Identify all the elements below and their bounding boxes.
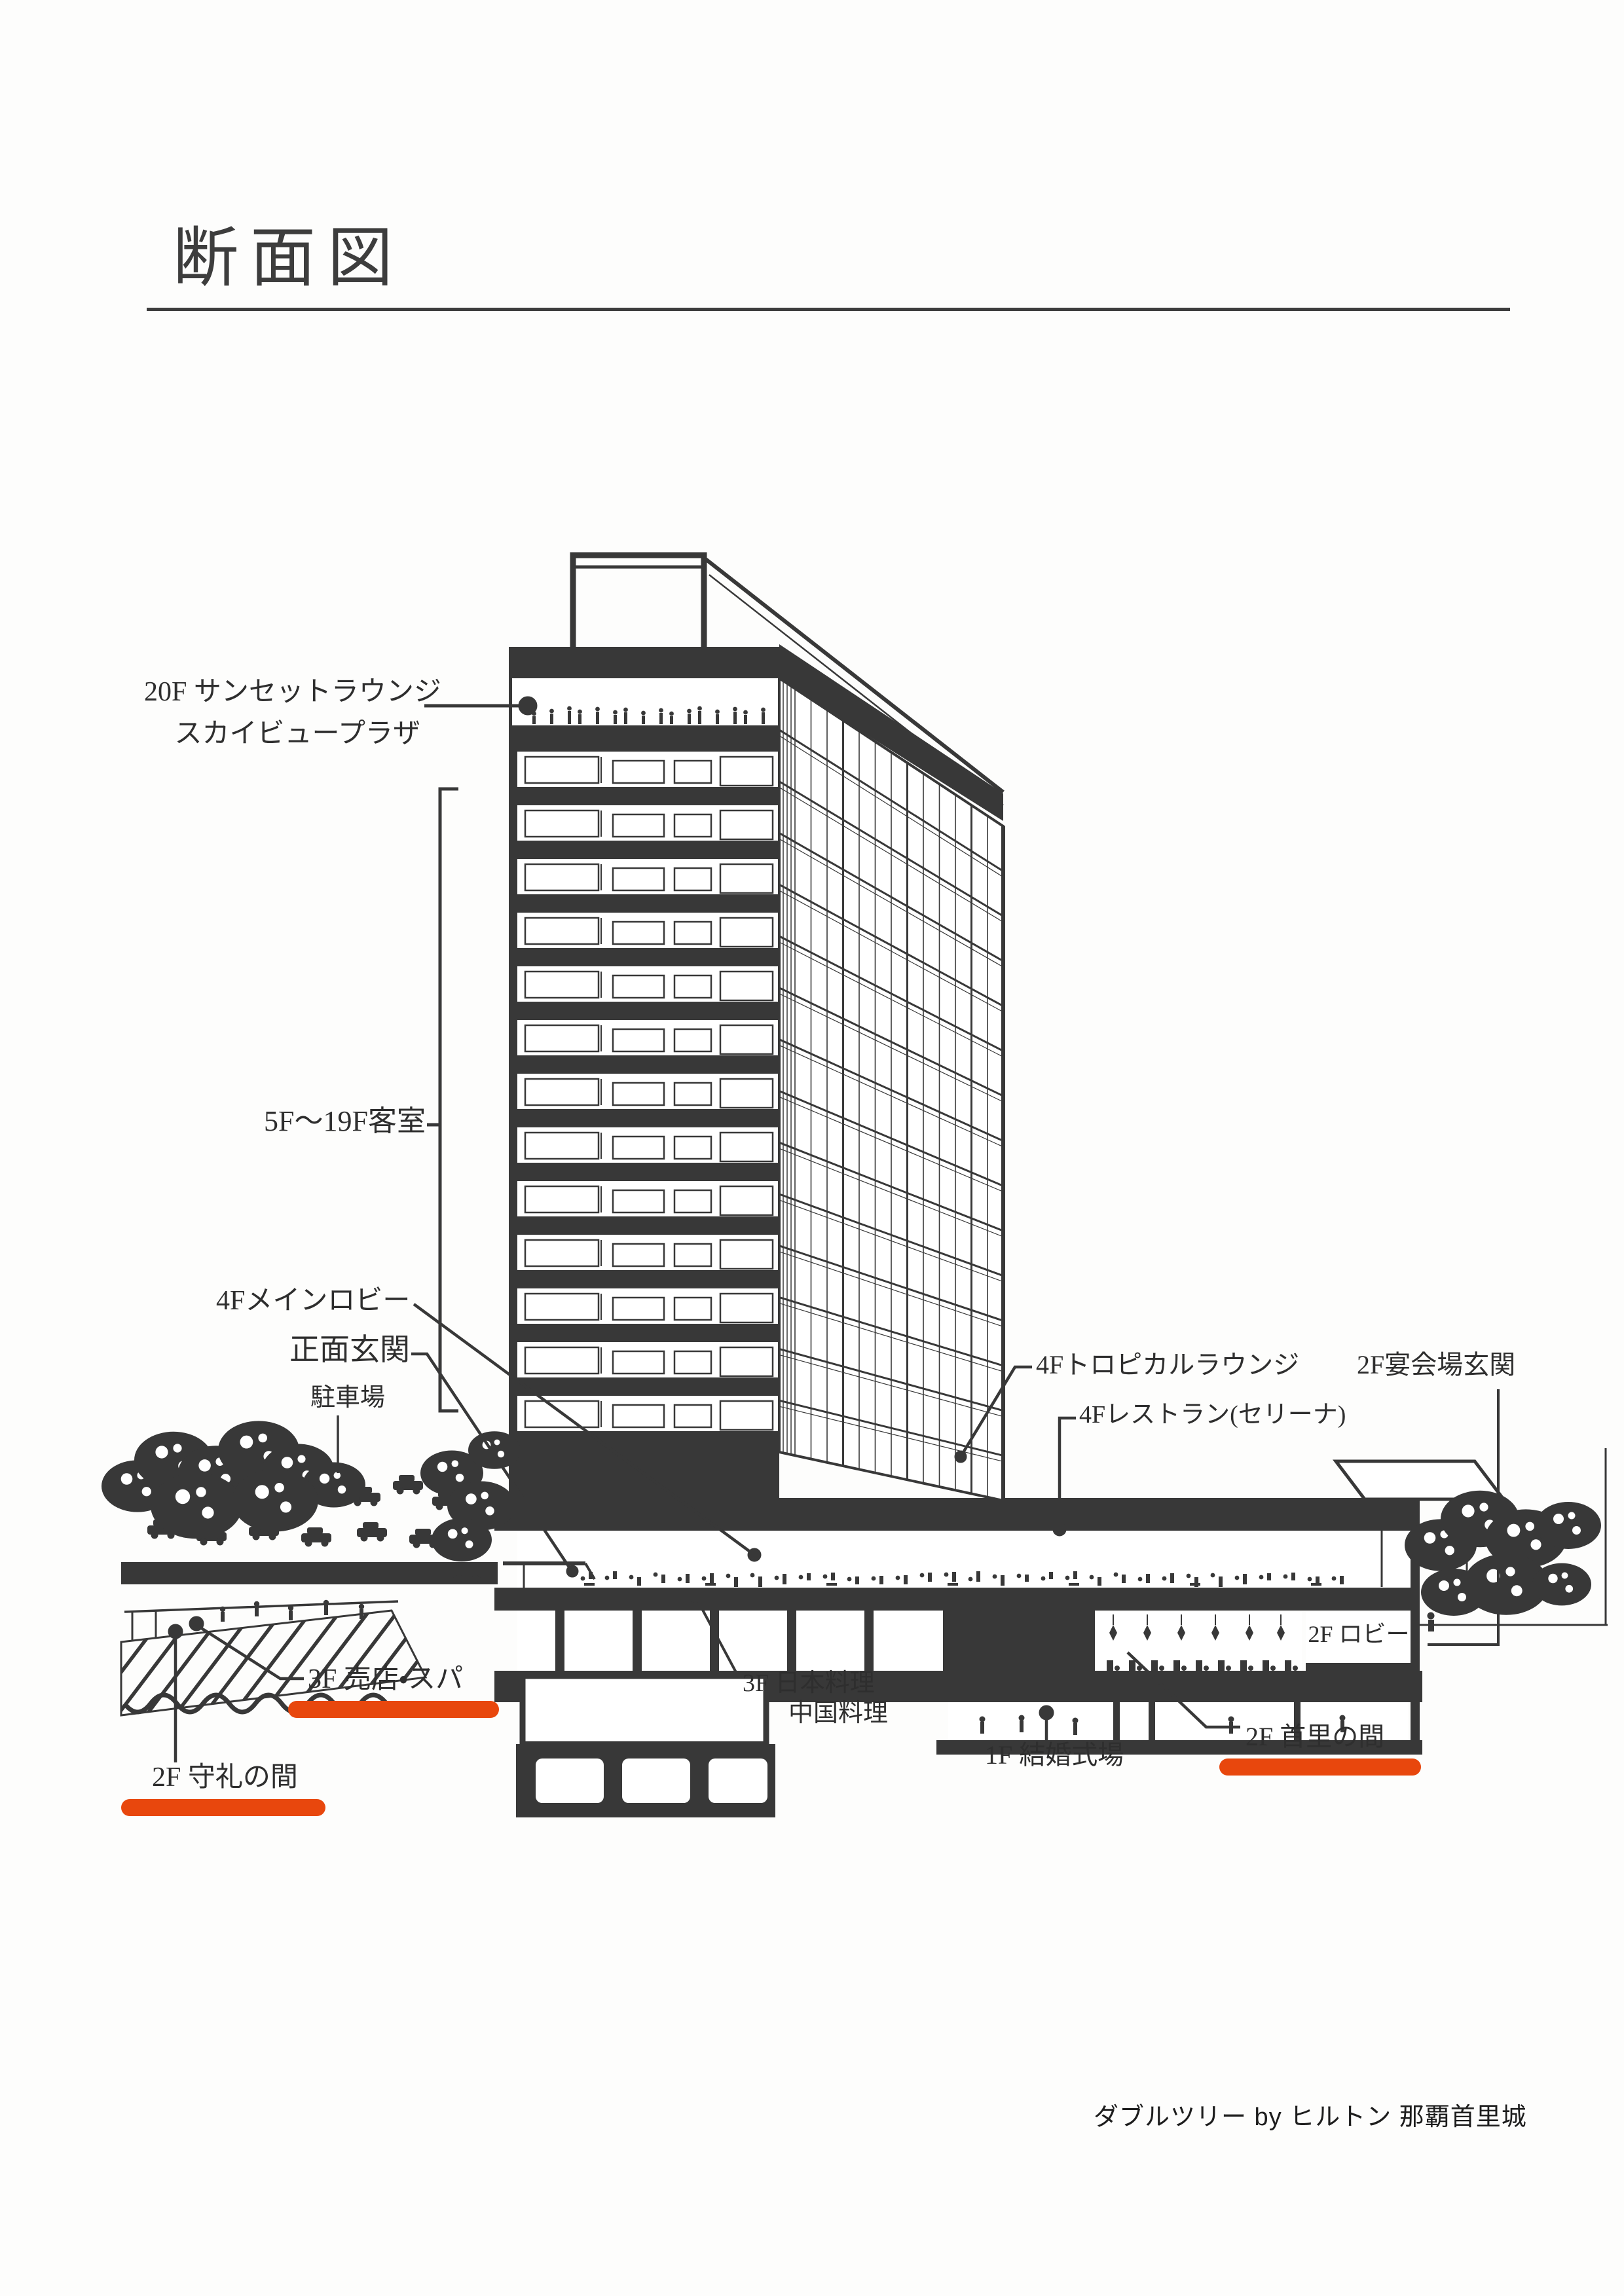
hotel-caption: ダブルツリー by ヒルトン 那覇首里城 [1094, 2096, 1527, 2132]
label-shuri-room: 2F 首里の間 [1246, 1723, 1384, 1751]
label-wedding-hall: 1F 結婚式場 [985, 1741, 1124, 1769]
tower-facade [779, 678, 1003, 1501]
label-tropical-lounge: 4Fトロピカルラウンジ [1036, 1351, 1299, 1379]
label-main-lobby: 4Fメインロビー [216, 1287, 410, 1316]
podium-roof-slab [494, 1498, 1418, 1531]
figure-by-lobby [1428, 1613, 1435, 1632]
highlight-underline-shop-spa [288, 1701, 499, 1718]
label-shurei-room: 2F 守礼の間 [152, 1764, 298, 1793]
label-restaurant: 4Fレストラン(セリーナ) [1079, 1402, 1346, 1429]
highlight-underline-shuri-room [1219, 1758, 1421, 1776]
label-shop-spa: 3F 売店・スパ [308, 1666, 463, 1694]
leader-shop-spa [189, 1616, 304, 1679]
label-banquet-entrance: 2F宴会場玄関 [1357, 1351, 1515, 1379]
label-lobby-2f: 2F ロビー [1306, 1622, 1412, 1647]
label-guest-rooms: 5F〜19F客室 [216, 1106, 426, 1137]
label-chinese-cuisine: 中国料理 [788, 1701, 888, 1727]
label-parking: 駐車場 [216, 1385, 385, 1412]
cross-section-illustration [0, 0, 1624, 2296]
highlight-underline-shurei-room [121, 1799, 325, 1816]
atrium-room [523, 1676, 766, 1744]
left-wing-slab [121, 1562, 498, 1584]
foundation-piers [516, 1744, 775, 1817]
label-front-entrance: 正面玄関 [216, 1334, 410, 1366]
document-page: 断面図 [0, 0, 1624, 2296]
guest-room-floors [512, 752, 779, 1449]
spa-terrace-railing [124, 1601, 413, 1712]
restaurant-floor [517, 1531, 1414, 1588]
label-japanese-cuisine: 3F 日本料理 [743, 1671, 875, 1697]
label-skyview-plaza: スカイビュープラザ [144, 720, 420, 749]
label-sunset-lounge: 20F サンセットラウンジ [144, 678, 420, 707]
